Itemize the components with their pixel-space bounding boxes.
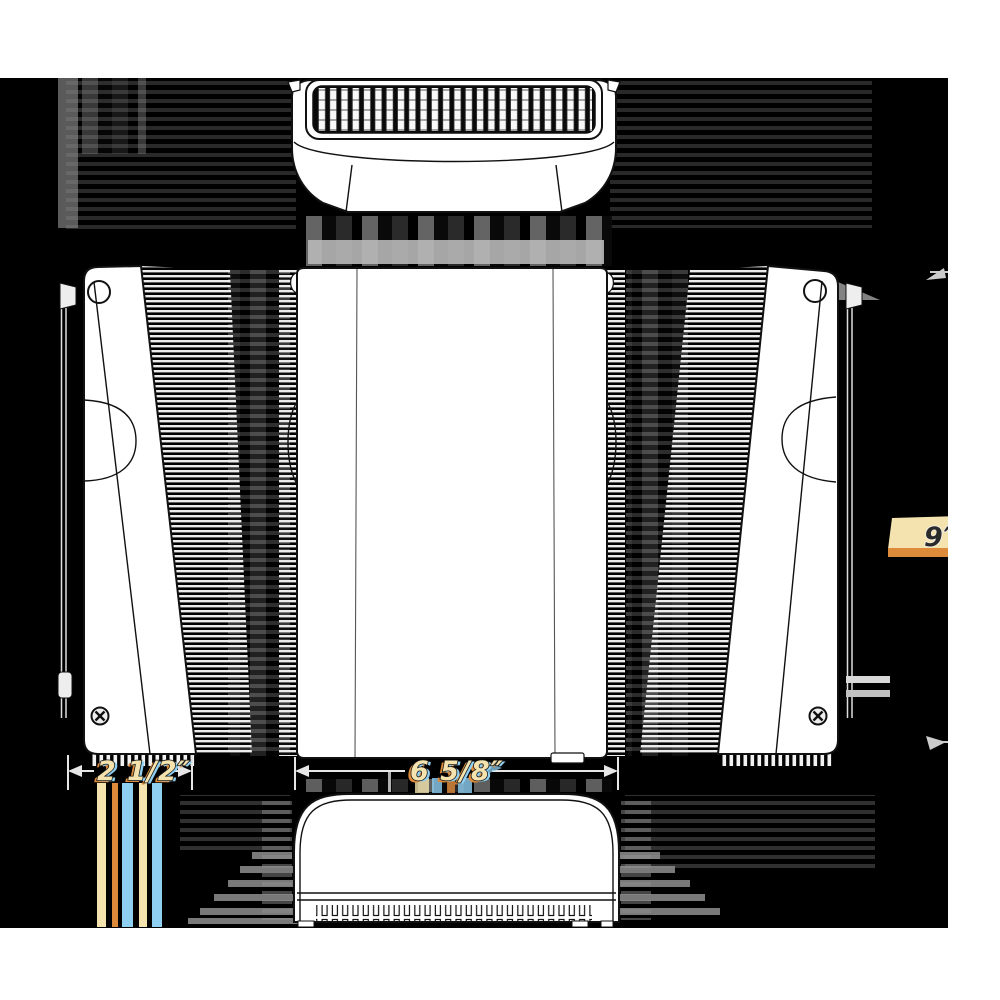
top-white-margin <box>0 0 1000 78</box>
right-white-margin <box>948 0 1000 1000</box>
smear-band-upper <box>296 216 612 266</box>
right-view-bottom-bar2 <box>846 690 890 697</box>
left-side-view <box>58 266 252 766</box>
left-view-mount-hole <box>88 281 110 303</box>
drawing-canvas: 2 1/2″ 2 1/2″ 2 1/2″ 6 5/8″ 6 5/8″ 6 5/8… <box>0 0 1000 1000</box>
top-view <box>288 80 620 212</box>
top-view-grille <box>306 80 602 139</box>
front-view-right-fins <box>607 268 625 756</box>
right-view-screw-icon <box>810 708 827 725</box>
technical-drawing: 2 1/2″ 2 1/2″ 2 1/2″ 6 5/8″ 6 5/8″ 6 5/8… <box>0 0 1000 1000</box>
front-view-bottom-tab <box>551 753 584 763</box>
bottom-view-ribs <box>316 905 592 921</box>
front-view <box>279 268 625 763</box>
bottom-white-margin <box>0 928 1000 1000</box>
depth-label: 2 1/2″ <box>97 756 191 787</box>
right-view-mount-hole <box>804 280 826 302</box>
front-view-panel <box>297 268 607 758</box>
left-view-bottom-bracket <box>58 672 72 698</box>
left-view-top-bracket <box>60 283 76 309</box>
front-view-left-fins <box>279 268 297 756</box>
width-label: 6 5/8″ <box>410 756 504 787</box>
grille-slats <box>316 88 592 131</box>
bottom-view-body <box>294 794 619 922</box>
right-view-bottom-bar1 <box>846 676 890 683</box>
right-view-top-bracket <box>846 283 862 309</box>
left-view-screw-icon <box>92 708 109 725</box>
